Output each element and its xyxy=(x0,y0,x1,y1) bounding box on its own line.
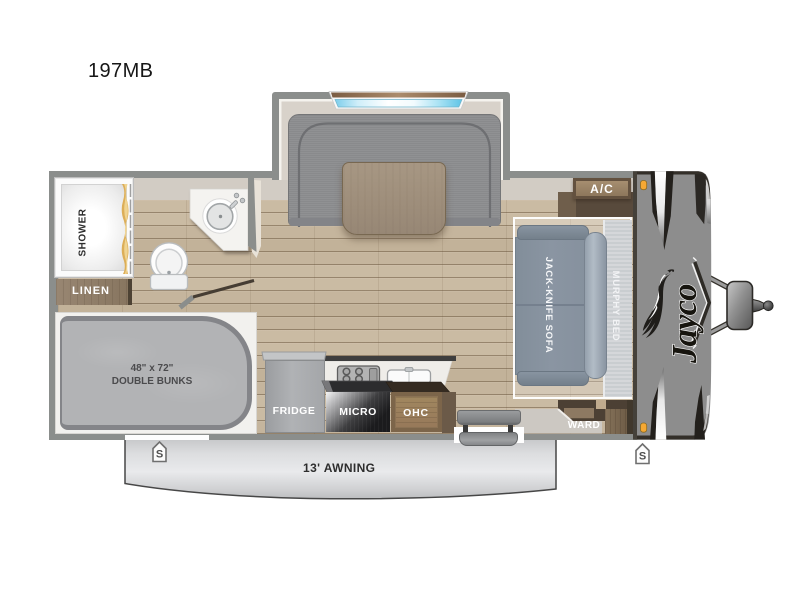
svg-text:S: S xyxy=(639,450,646,462)
svg-text:S: S xyxy=(156,449,163,461)
svg-text:Jayco: Jayco xyxy=(665,284,704,364)
